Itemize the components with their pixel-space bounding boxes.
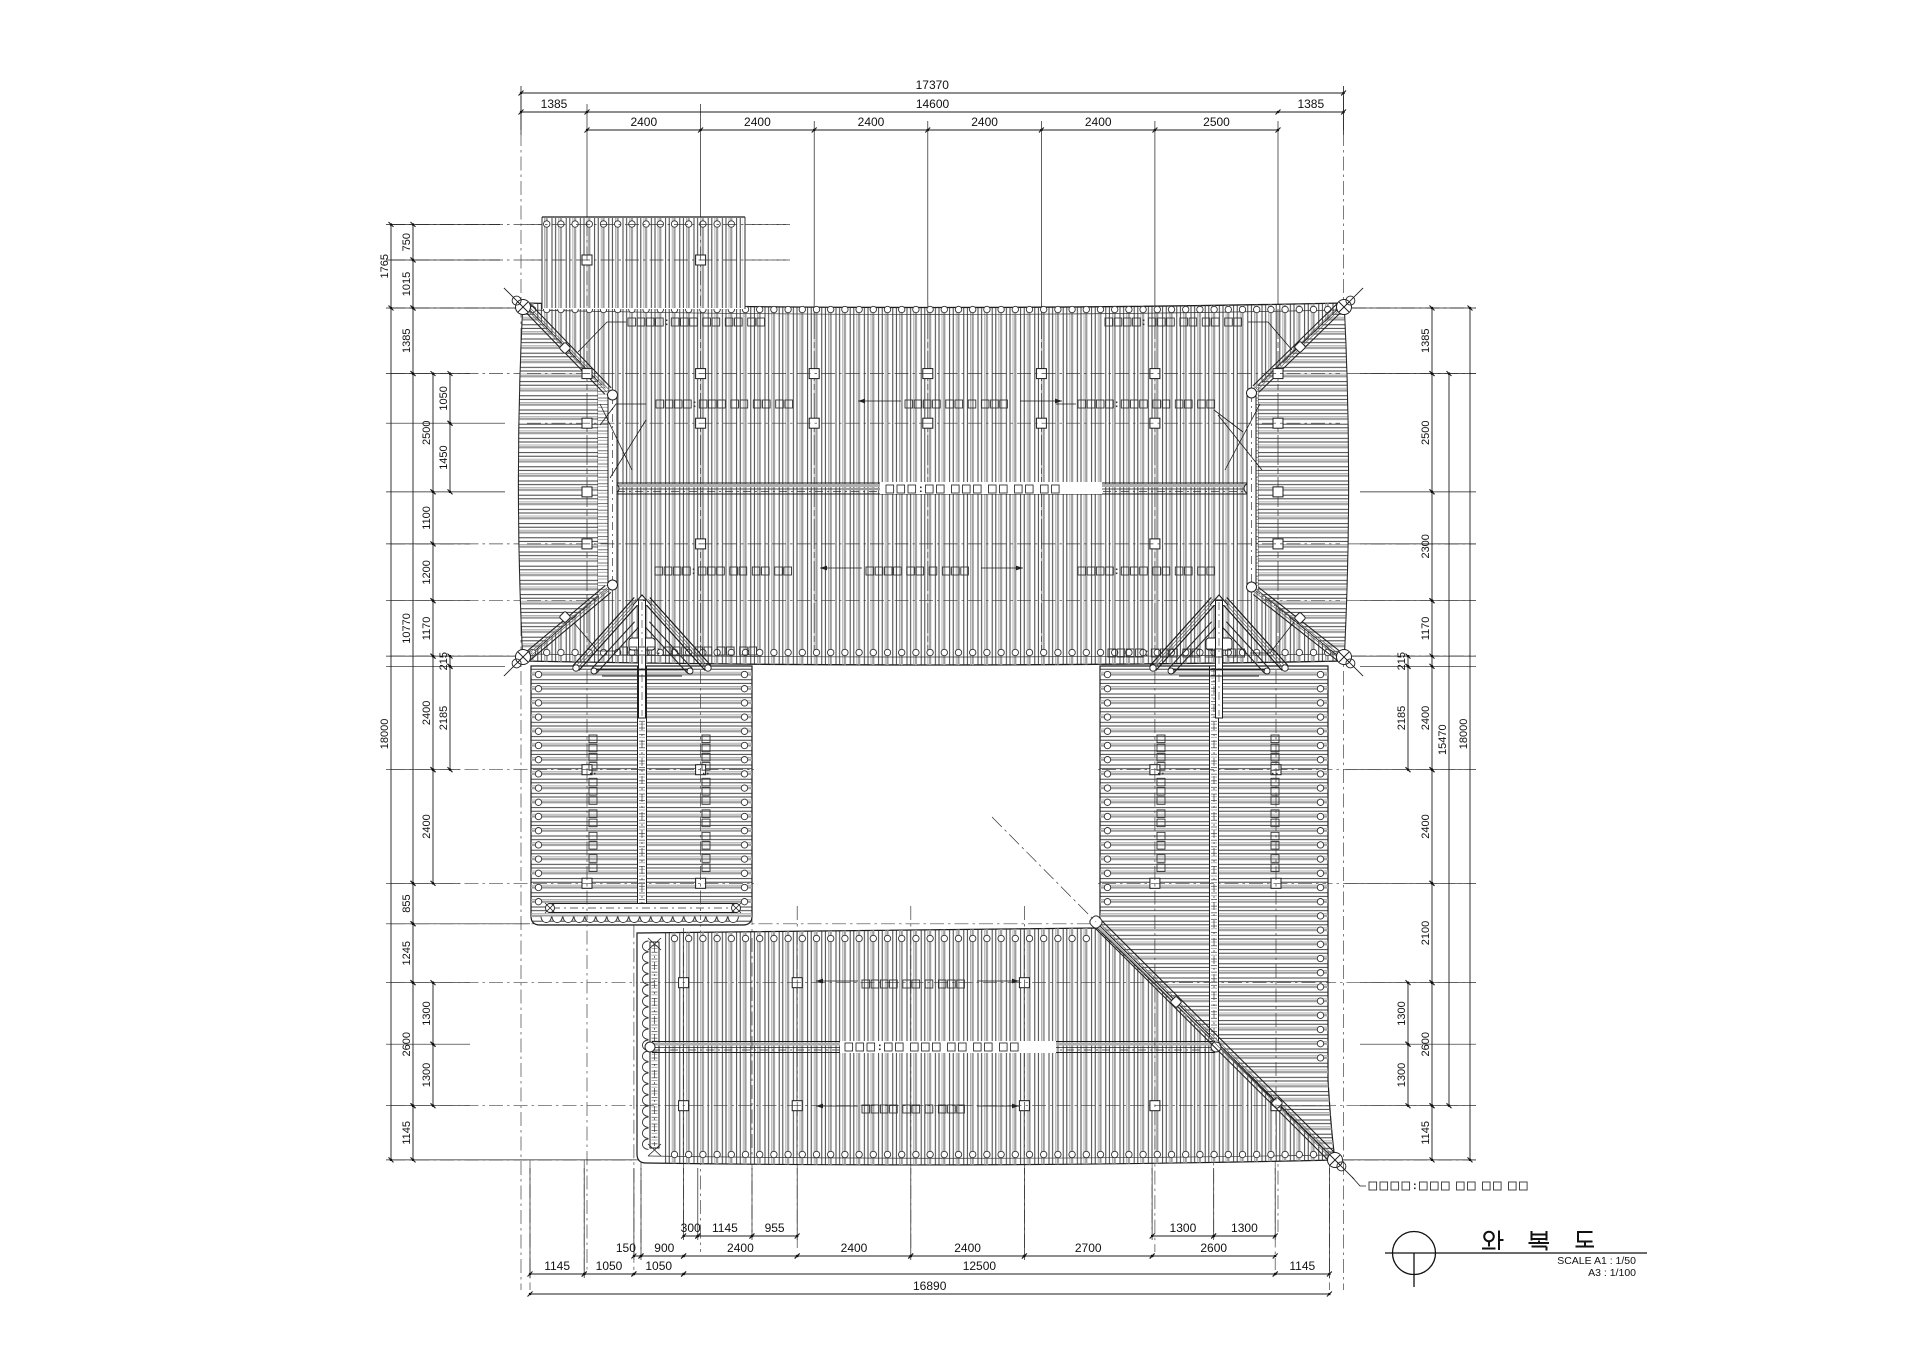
- svg-text:1170: 1170: [1420, 617, 1432, 641]
- svg-text:SCALE A1 : 1/50: SCALE A1 : 1/50: [1557, 1255, 1636, 1267]
- svg-text:900: 900: [654, 1241, 674, 1255]
- svg-text:2400: 2400: [727, 1241, 754, 1255]
- svg-text:1145: 1145: [544, 1259, 570, 1273]
- svg-text:750: 750: [401, 233, 413, 251]
- svg-text:1385: 1385: [541, 97, 568, 111]
- svg-text:1100: 1100: [421, 506, 433, 530]
- svg-text:1145: 1145: [1420, 1121, 1432, 1145]
- svg-text:2500: 2500: [1203, 115, 1230, 129]
- svg-text:2400: 2400: [630, 115, 657, 129]
- svg-text:A3 : 1/100: A3 : 1/100: [1588, 1267, 1636, 1279]
- svg-text:2500: 2500: [1420, 420, 1432, 444]
- svg-text:1015: 1015: [401, 272, 413, 296]
- svg-text:15470: 15470: [1437, 724, 1449, 755]
- svg-text:2400: 2400: [421, 701, 433, 725]
- svg-text:150: 150: [616, 1241, 636, 1255]
- svg-text:2400: 2400: [971, 115, 998, 129]
- svg-text:2300: 2300: [1420, 534, 1432, 558]
- svg-text:18000: 18000: [379, 719, 391, 750]
- svg-text:1050: 1050: [438, 386, 450, 410]
- svg-text:2400: 2400: [954, 1241, 981, 1255]
- svg-text:2600: 2600: [1420, 1032, 1432, 1056]
- svg-text:10770: 10770: [401, 613, 413, 644]
- svg-text:1145: 1145: [712, 1221, 738, 1235]
- svg-text:14600: 14600: [916, 97, 950, 111]
- svg-text:2400: 2400: [1420, 706, 1432, 730]
- svg-text:215: 215: [438, 652, 450, 670]
- svg-text:1300: 1300: [1396, 1063, 1408, 1087]
- svg-text:1245: 1245: [401, 941, 413, 965]
- svg-text:1385: 1385: [401, 329, 413, 353]
- svg-text:18000: 18000: [1458, 719, 1470, 750]
- svg-text:2400: 2400: [1085, 115, 1112, 129]
- svg-text:16890: 16890: [913, 1279, 947, 1293]
- svg-text:1300: 1300: [1231, 1221, 1258, 1235]
- svg-text:2400: 2400: [841, 1241, 868, 1255]
- svg-text:855: 855: [401, 894, 413, 912]
- svg-text:17370: 17370: [916, 78, 950, 92]
- svg-text:1200: 1200: [421, 560, 433, 584]
- svg-text:1050: 1050: [645, 1259, 672, 1273]
- svg-text:1300: 1300: [421, 1063, 433, 1087]
- svg-text:2185: 2185: [438, 706, 450, 730]
- svg-text:1300: 1300: [1170, 1221, 1197, 1235]
- svg-text:1145: 1145: [1289, 1259, 1315, 1273]
- svg-text:2185: 2185: [1396, 706, 1408, 730]
- svg-text:2500: 2500: [421, 420, 433, 444]
- svg-text:1385: 1385: [1297, 97, 1324, 111]
- svg-text:2600: 2600: [401, 1032, 413, 1056]
- svg-text:2400: 2400: [421, 814, 433, 838]
- svg-text:1170: 1170: [421, 617, 433, 641]
- svg-text:2400: 2400: [1420, 814, 1432, 838]
- svg-text:1050: 1050: [596, 1259, 623, 1273]
- svg-text:1300: 1300: [1396, 1001, 1408, 1025]
- svg-text:2600: 2600: [1200, 1241, 1227, 1255]
- svg-text:2400: 2400: [744, 115, 771, 129]
- svg-text:12500: 12500: [963, 1259, 997, 1273]
- svg-text:1450: 1450: [438, 445, 450, 469]
- svg-text:2100: 2100: [1420, 921, 1432, 945]
- svg-text:955: 955: [765, 1221, 785, 1235]
- svg-text:300: 300: [681, 1221, 701, 1235]
- svg-text:2400: 2400: [858, 115, 885, 129]
- svg-text:1765: 1765: [379, 254, 391, 278]
- svg-text:1145: 1145: [401, 1121, 413, 1145]
- svg-text:215: 215: [1396, 652, 1408, 670]
- svg-text:2700: 2700: [1075, 1241, 1102, 1255]
- svg-text:1300: 1300: [421, 1001, 433, 1025]
- svg-text:1385: 1385: [1420, 329, 1432, 353]
